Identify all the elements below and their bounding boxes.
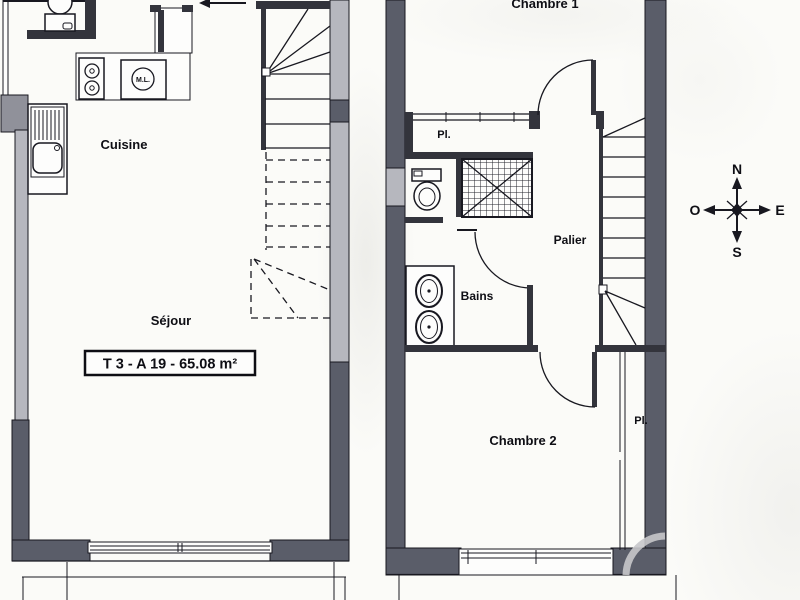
entry-arrow xyxy=(199,0,246,8)
chambre2-label: Chambre 2 xyxy=(489,433,556,448)
closet-right-label: Pl. xyxy=(634,415,647,427)
compass-east-label: E xyxy=(775,202,784,218)
chambre1-label: Chambre 1 xyxy=(511,0,578,11)
terrace-outline xyxy=(22,562,346,600)
bains-label: Bains xyxy=(461,289,494,303)
entry-door xyxy=(150,5,193,53)
ground-floor-plan: M.L. xyxy=(1,0,349,600)
chambre1-wall-and-closet xyxy=(405,111,604,159)
sejour-label: Séjour xyxy=(151,313,191,328)
floorplan-page: M.L. xyxy=(0,0,800,600)
kitchen-sink-unit xyxy=(28,104,67,194)
compass-north-arrow xyxy=(732,177,742,189)
wc-toilet xyxy=(45,0,75,31)
compass-east-arrow xyxy=(759,205,771,215)
stove-cooktop xyxy=(79,58,104,99)
unit-area-label: T 3 - A 19 - 65.08 m² xyxy=(103,357,237,373)
compass-south-arrow xyxy=(732,231,742,243)
upper-terrace-lines xyxy=(399,575,676,600)
staircase-ground-floor xyxy=(251,1,330,318)
compass-west-arrow xyxy=(703,205,715,215)
compass-north-label: N xyxy=(732,161,742,177)
compass-south-label: S xyxy=(732,244,741,260)
upper-toilet xyxy=(412,169,441,210)
chambre2-door xyxy=(540,352,597,407)
palier-label: Palier xyxy=(554,233,587,247)
compass-west-label: O xyxy=(690,202,701,218)
sliding-bay-window xyxy=(88,542,272,553)
chambre2-window xyxy=(459,549,613,575)
wc-bains-divider xyxy=(405,217,443,223)
compass-rose: N O E S xyxy=(690,161,785,260)
chambre2-walls xyxy=(405,345,666,352)
closet-top-label: Pl. xyxy=(437,129,450,141)
closet-right-sliding-door xyxy=(620,352,625,550)
upper-floor-plan: Chambre 1 Pl. Palier Bains Chambre 2 Pl. xyxy=(386,0,676,600)
unit-area-box: T 3 - A 19 - 65.08 m² xyxy=(85,351,255,375)
compass-center-diamond xyxy=(731,203,743,217)
washing-machine-label: M.L. xyxy=(136,77,150,84)
washing-machine: M.L. xyxy=(121,60,166,99)
cuisine-label: Cuisine xyxy=(101,137,148,152)
shower-hatched-box xyxy=(456,159,532,217)
chambre1-door xyxy=(538,60,596,115)
staircase-upper-floor xyxy=(599,114,645,345)
floorplan-drawing: M.L. xyxy=(0,0,800,600)
bains-vanity xyxy=(406,266,454,348)
